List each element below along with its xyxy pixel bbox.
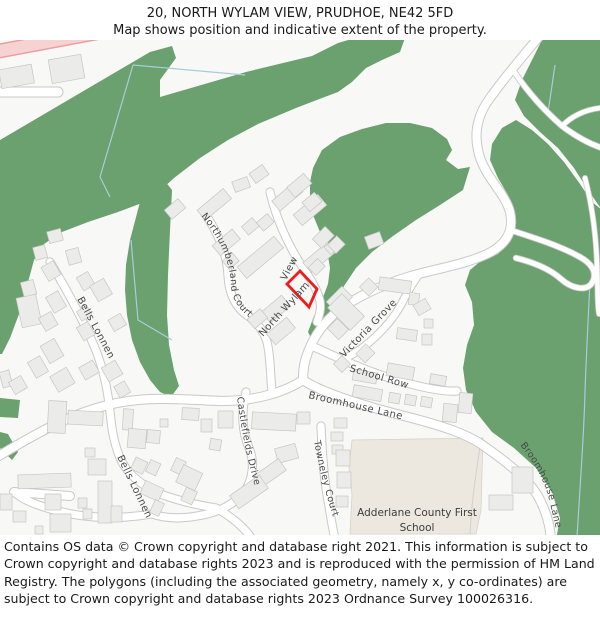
school-label-line1: Adderlane County First (357, 507, 477, 519)
map-header: 20, NORTH WYLAM VIEW, PRUDHOE, NE42 5FD … (0, 0, 600, 40)
map-canvas: Northumberland Court North Wylam View Vi… (0, 40, 600, 535)
street-label-castlefields-drive: Castlefields Drive (234, 396, 262, 487)
map-svg: Northumberland Court North Wylam View Vi… (0, 40, 600, 535)
copyright-notice: Contains OS data © Crown copyright and d… (0, 535, 600, 625)
page-subtitle: Map shows position and indicative extent… (0, 22, 600, 39)
school-label-line2: School (400, 522, 435, 534)
primary-road (0, 40, 122, 52)
school-grounds (349, 438, 483, 534)
page-title: 20, NORTH WYLAM VIEW, PRUDHOE, NE42 5FD (0, 5, 600, 22)
street-label-view: View (279, 255, 301, 283)
property-map-page: 20, NORTH WYLAM VIEW, PRUDHOE, NE42 5FD … (0, 0, 600, 625)
copyright-text: Contains OS data © Crown copyright and d… (4, 538, 596, 608)
